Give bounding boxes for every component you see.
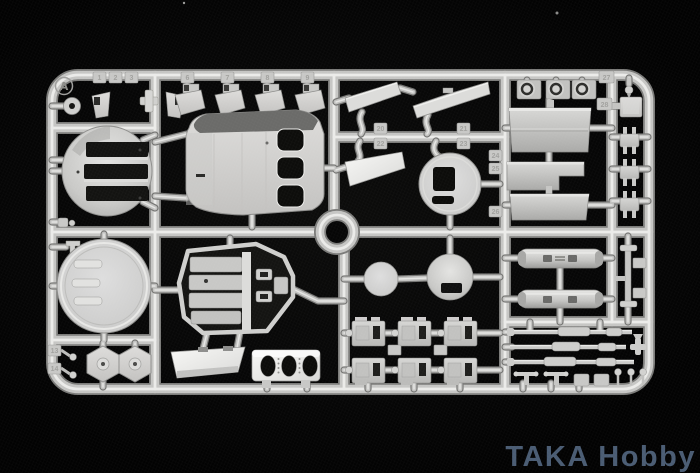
part-number-tab: 27 — [599, 71, 614, 83]
part-hatch-disc — [57, 239, 151, 333]
part-number-tab: 2 — [109, 72, 122, 83]
svg-text:7: 7 — [226, 75, 230, 82]
part-axle-mounts — [620, 127, 639, 218]
part-number-tab: 22 — [374, 138, 387, 149]
sprue-letter: A — [60, 80, 69, 93]
svg-text:3: 3 — [130, 75, 134, 82]
part-glacis-plate — [171, 346, 245, 378]
watermark-text: TAKA Hobby — [505, 441, 696, 473]
part-number-tab: 7 — [221, 72, 234, 83]
svg-text:20: 20 — [377, 126, 385, 133]
part-number-tab: 1 — [93, 72, 106, 83]
part-number-tab: 24 — [489, 150, 502, 161]
part-hex-caps — [61, 346, 151, 382]
svg-text:6: 6 — [186, 75, 190, 82]
part-mount-blocks — [346, 317, 478, 385]
part-i-beam — [615, 245, 646, 307]
part-number-tab: 26 — [489, 206, 502, 217]
part-number-tab: 6 — [181, 72, 194, 83]
svg-text:27: 27 — [603, 75, 611, 82]
part-number-tab: 20 — [374, 123, 387, 134]
sprue-illustration: 1 2 3 6 7 8 9 13 14 20 21 22 23 24 25 26… — [0, 0, 700, 473]
dust-specks — [183, 2, 559, 15]
part-gun-barrels — [507, 327, 646, 366]
svg-text:13: 13 — [51, 348, 59, 355]
svg-text:14: 14 — [51, 366, 59, 373]
part-hatch-flaps — [175, 84, 325, 115]
part-number-tab: 23 — [457, 138, 470, 149]
part-number-tab: 8 — [261, 72, 274, 83]
svg-text:26: 26 — [492, 209, 500, 216]
part-number-tab: 28 — [597, 98, 612, 110]
center-ring — [320, 215, 354, 249]
part-port-disc — [419, 153, 481, 215]
part-casemate-underside — [179, 244, 293, 333]
svg-text:1: 1 — [98, 75, 102, 82]
part-engine-deck-disc — [62, 126, 152, 216]
svg-text:25: 25 — [492, 166, 500, 173]
part-number-tab: 21 — [457, 123, 470, 134]
svg-text:9: 9 — [306, 75, 310, 82]
part-washer — [64, 98, 81, 115]
part-triple-port-plate — [252, 350, 320, 388]
svg-text:23: 23 — [460, 141, 468, 148]
part-number-tab: 9 — [301, 72, 314, 83]
part-number-tab: 25 — [489, 163, 502, 174]
svg-text:8: 8 — [266, 75, 270, 82]
svg-text:22: 22 — [377, 141, 385, 148]
svg-text:21: 21 — [460, 126, 468, 133]
svg-text:2: 2 — [114, 75, 118, 82]
svg-text:24: 24 — [492, 153, 500, 160]
part-number-tab: 13 — [48, 345, 61, 356]
part-small-bracket — [58, 218, 75, 227]
svg-text:28: 28 — [601, 102, 609, 109]
part-number-tab: 3 — [125, 72, 138, 83]
part-number-tab: 14 — [48, 363, 61, 374]
sprue-photo: 1 2 3 6 7 8 9 13 14 20 21 22 23 24 25 26… — [0, 0, 700, 473]
part-hinge-wedges-and-cross — [92, 90, 184, 118]
part-casemate-roof — [186, 110, 324, 215]
part-periscope-caps — [517, 80, 596, 99]
